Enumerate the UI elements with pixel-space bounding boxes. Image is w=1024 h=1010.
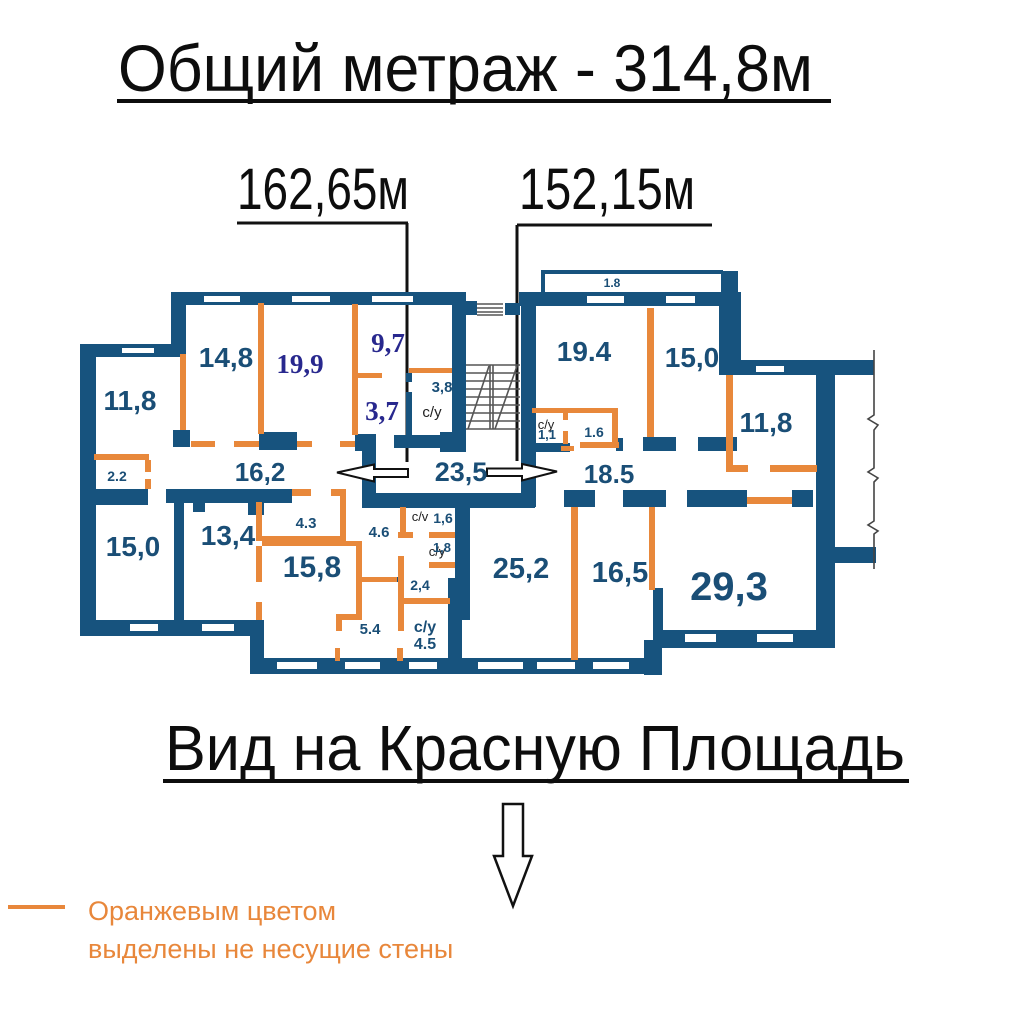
svg-text:19,9: 19,9 [276,349,323,379]
svg-text:11,8: 11,8 [740,407,793,438]
svg-text:1.8: 1.8 [604,276,621,290]
svg-text:16,5: 16,5 [592,557,648,589]
svg-text:25,2: 25,2 [493,553,549,585]
svg-text:9,7: 9,7 [371,328,405,358]
svg-text:4.3: 4.3 [296,515,317,532]
svg-text:с/v: с/v [412,509,429,524]
svg-text:Оранжевым цветом: Оранжевым цветом [88,896,336,926]
svg-text:15,0: 15,0 [665,342,720,373]
svg-text:16,2: 16,2 [235,457,286,487]
svg-text:Общий метраж - 314,8м: Общий метраж - 314,8м [118,31,813,105]
svg-text:5.4: 5.4 [360,621,382,638]
svg-text:29,3: 29,3 [690,565,768,609]
svg-text:15,0: 15,0 [106,531,161,562]
svg-text:с/у: с/у [414,619,436,636]
svg-text:4.6: 4.6 [369,524,390,541]
svg-text:14,8: 14,8 [199,342,254,373]
svg-text:18.5: 18.5 [584,459,635,489]
svg-text:выделены не несущие стены: выделены не несущие стены [88,934,453,964]
svg-text:1,8: 1,8 [433,540,451,555]
svg-text:1,6: 1,6 [433,510,453,526]
svg-text:3,7: 3,7 [365,396,399,426]
svg-text:152,15м: 152,15м [519,157,695,222]
svg-text:162,65м: 162,65м [237,157,409,222]
svg-text:19.4: 19.4 [557,336,612,367]
svg-text:2,4: 2,4 [410,577,430,593]
svg-text:2.2: 2.2 [107,468,127,484]
svg-text:1,1: 1,1 [538,427,556,442]
svg-text:4.5: 4.5 [414,636,436,653]
svg-text:Вид на Красную Площадь: Вид на Красную Площадь [165,712,905,784]
svg-text:3,8: 3,8 [432,379,453,396]
svg-text:23,5: 23,5 [435,457,488,487]
svg-text:1.6: 1.6 [584,424,604,440]
svg-text:11,8: 11,8 [104,385,157,416]
svg-text:с/у: с/у [422,404,442,421]
svg-text:15,8: 15,8 [283,551,341,584]
svg-text:13,4: 13,4 [201,520,256,551]
